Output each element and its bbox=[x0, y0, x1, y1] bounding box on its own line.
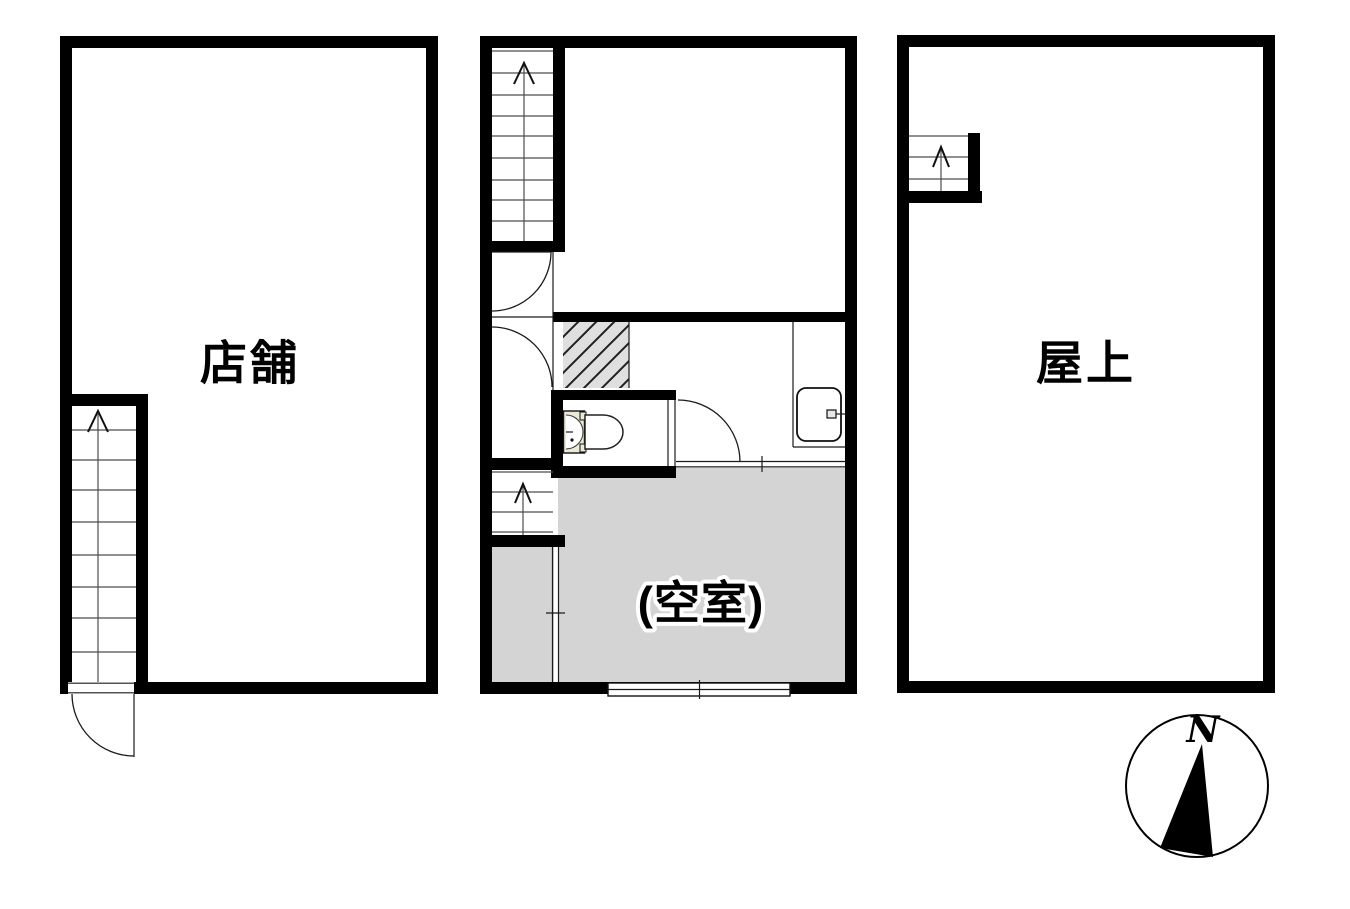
floor-plan-image: 店舗 bbox=[0, 0, 1350, 909]
hatched-void bbox=[563, 322, 629, 388]
label-roof: 屋上 bbox=[1036, 337, 1136, 390]
toilet-bottom-wall bbox=[551, 466, 676, 478]
door-swing-arc-1f bbox=[72, 694, 134, 756]
compass: N bbox=[1126, 709, 1268, 857]
unit-first-floor: 店舗 bbox=[60, 42, 432, 757]
toilet-bowl bbox=[585, 415, 623, 449]
stair-1f-top-wall bbox=[60, 394, 148, 406]
wall-under-lower-stair bbox=[480, 535, 565, 547]
vacant-room-floor bbox=[558, 467, 845, 682]
hall-bottom-wall bbox=[480, 458, 563, 470]
entry-door-1f bbox=[68, 682, 134, 757]
compass-north-label: N bbox=[1186, 709, 1222, 751]
label-store: 店舗 bbox=[200, 337, 300, 390]
window-2f bbox=[608, 680, 790, 699]
wall-under-upper-stair bbox=[480, 241, 565, 252]
toilet-fixture bbox=[564, 411, 624, 453]
floor-plan-canvas: 店舗 bbox=[0, 0, 1350, 909]
stair-2f-right-wall bbox=[553, 36, 565, 252]
label-vacant-room: (空室) bbox=[638, 577, 765, 629]
stair-1f-right-wall bbox=[136, 394, 148, 694]
toilet-top-wall bbox=[551, 390, 676, 400]
unit-roof: 屋上 bbox=[903, 41, 1269, 687]
unit-second-floor: (空室) bbox=[480, 36, 851, 699]
entry-floor-2f bbox=[492, 547, 554, 682]
roof-stair-stub-wall bbox=[968, 133, 980, 203]
big-room-bottom-wall bbox=[553, 312, 845, 322]
